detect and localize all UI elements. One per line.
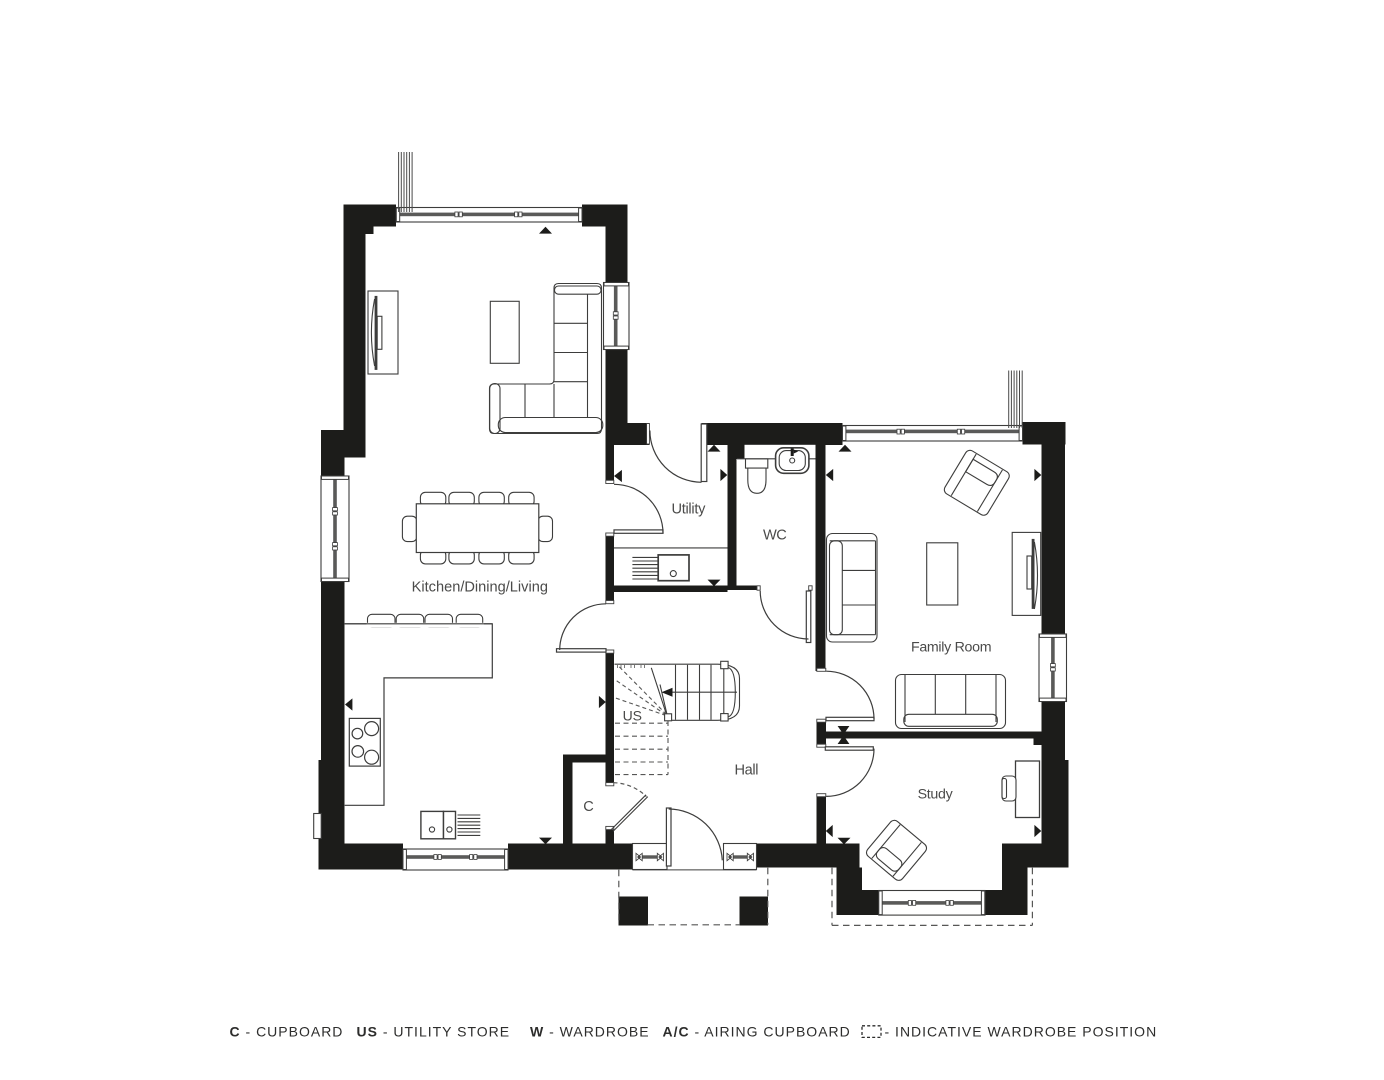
- svg-text:Study: Study: [918, 787, 954, 803]
- svg-text:Kitchen/Dining/Living: Kitchen/Dining/Living: [412, 579, 548, 595]
- svg-text:Utility: Utility: [672, 502, 707, 518]
- svg-text:W - WARDROBE: W - WARDROBE: [530, 1024, 650, 1040]
- svg-text:- INDICATIVE WARDROBE POSITION: - INDICATIVE WARDROBE POSITION: [885, 1024, 1158, 1040]
- svg-text:A/C - AIRING CUPBOARD: A/C - AIRING CUPBOARD: [663, 1024, 851, 1040]
- svg-text:Family Room: Family Room: [911, 640, 991, 656]
- svg-text:C: C: [583, 799, 594, 815]
- svg-text:US - UTILITY STORE: US - UTILITY STORE: [357, 1024, 511, 1040]
- svg-text:Hall: Hall: [735, 762, 759, 778]
- svg-text:C - CUPBOARD: C - CUPBOARD: [230, 1024, 344, 1040]
- svg-text:WC: WC: [763, 527, 787, 543]
- svg-text:US: US: [623, 708, 642, 724]
